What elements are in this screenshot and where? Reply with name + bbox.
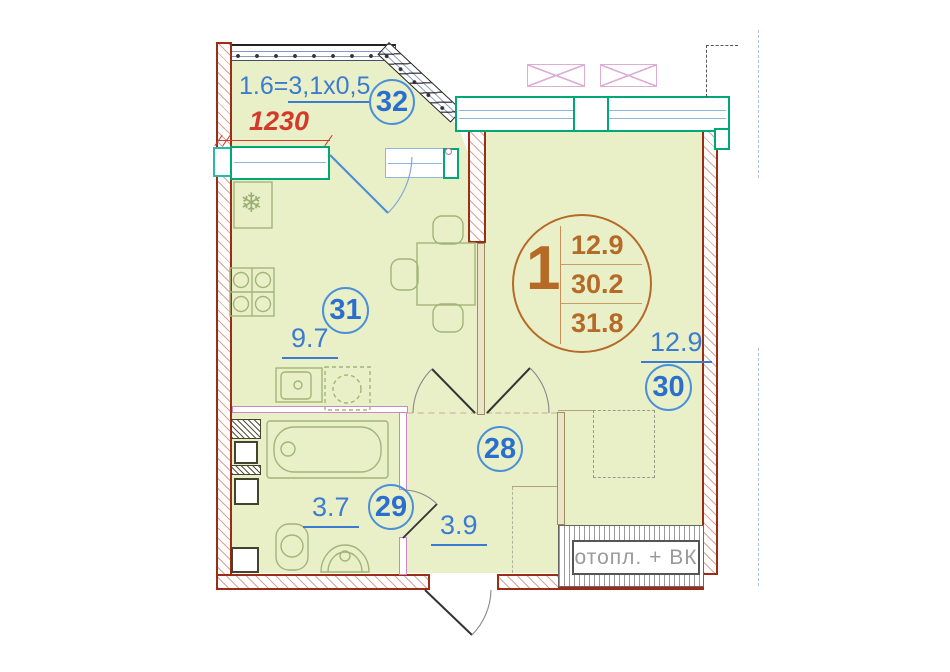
heating-niche-label: отопл. + ВК (575, 546, 698, 570)
hall-closet-dashed (512, 487, 513, 573)
fridge-snowflake-icon: ❄ (240, 188, 263, 219)
formula-prefix: 1.6= (239, 72, 288, 100)
unit-area-values: 12.9 30.2 31.8 (560, 226, 642, 344)
glazing-mullion-dots (235, 53, 393, 60)
door-threshold-left (407, 412, 477, 414)
partition-kitchen-living (477, 243, 485, 415)
partition-bathroom-right-lower (399, 537, 407, 575)
room-circle-living: 30 (645, 364, 692, 411)
wall-left (216, 42, 232, 590)
living-lower-line (558, 410, 594, 411)
window-living-right-return (714, 128, 730, 150)
shaft-hatched (231, 465, 261, 475)
floor-plan: отопл. + ВК (0, 0, 950, 672)
window-balcony-kitchen-2 (385, 148, 445, 178)
door-threshold-right (486, 412, 557, 414)
partition-bathroom-top (232, 406, 408, 413)
vent-duct-icon (600, 64, 657, 87)
room-circle-balcony: 32 (369, 79, 415, 125)
entrance-door (425, 590, 491, 635)
hall-closet-top (512, 486, 557, 487)
balcony-glazing-band (230, 44, 396, 61)
adjacent-unit-dashed-line (706, 45, 707, 97)
partition-hall-living (557, 412, 565, 525)
unit-area: 30.2 (561, 265, 642, 304)
dimension-text: 1230 (249, 106, 309, 137)
vent-point (445, 148, 452, 155)
shaft-hatched (231, 419, 261, 439)
dimension-line (218, 140, 330, 141)
heating-niche-box: отопл. + ВК (572, 540, 700, 575)
shaft-box (234, 478, 259, 505)
unit-summary-badge: 1 12.9 30.2 31.8 (512, 214, 652, 353)
area-label-bathroom: 3.7 (303, 492, 359, 528)
unit-total-area: 31.8 (561, 304, 642, 342)
shaft-box-bottom (231, 547, 259, 573)
niche-bottom-wall-line (558, 587, 704, 590)
wall-pier-kitchen-living (468, 127, 486, 243)
area-label-living: 12.9 (641, 327, 712, 363)
room-circle-bathroom: 29 (368, 484, 414, 530)
unit-number: 1 (526, 238, 560, 300)
unit-living-area: 12.9 (561, 226, 642, 265)
axis-line (758, 348, 759, 586)
area-label-hallway: 3.9 (431, 510, 487, 546)
wall-bottom-left (216, 574, 430, 590)
adjacent-unit-dashed-line (706, 45, 738, 46)
formula-value: 3,1x0,5 (288, 72, 370, 103)
shaft-box (234, 441, 258, 464)
window-living-mullion (573, 96, 609, 132)
area-label-kitchen: 9.7 (282, 323, 338, 359)
balcony-area-formula: 1.6=3,1x0,5 (239, 72, 370, 101)
wall-bottom-mid (497, 574, 562, 590)
axis-line (758, 30, 759, 178)
room-circle-hallway: 28 (477, 426, 523, 472)
window-balcony-kitchen (230, 146, 330, 180)
wardrobe-dashed-outline (593, 410, 655, 478)
partition-bathroom-right-upper (399, 412, 407, 490)
vent-duct-icon (527, 64, 585, 87)
